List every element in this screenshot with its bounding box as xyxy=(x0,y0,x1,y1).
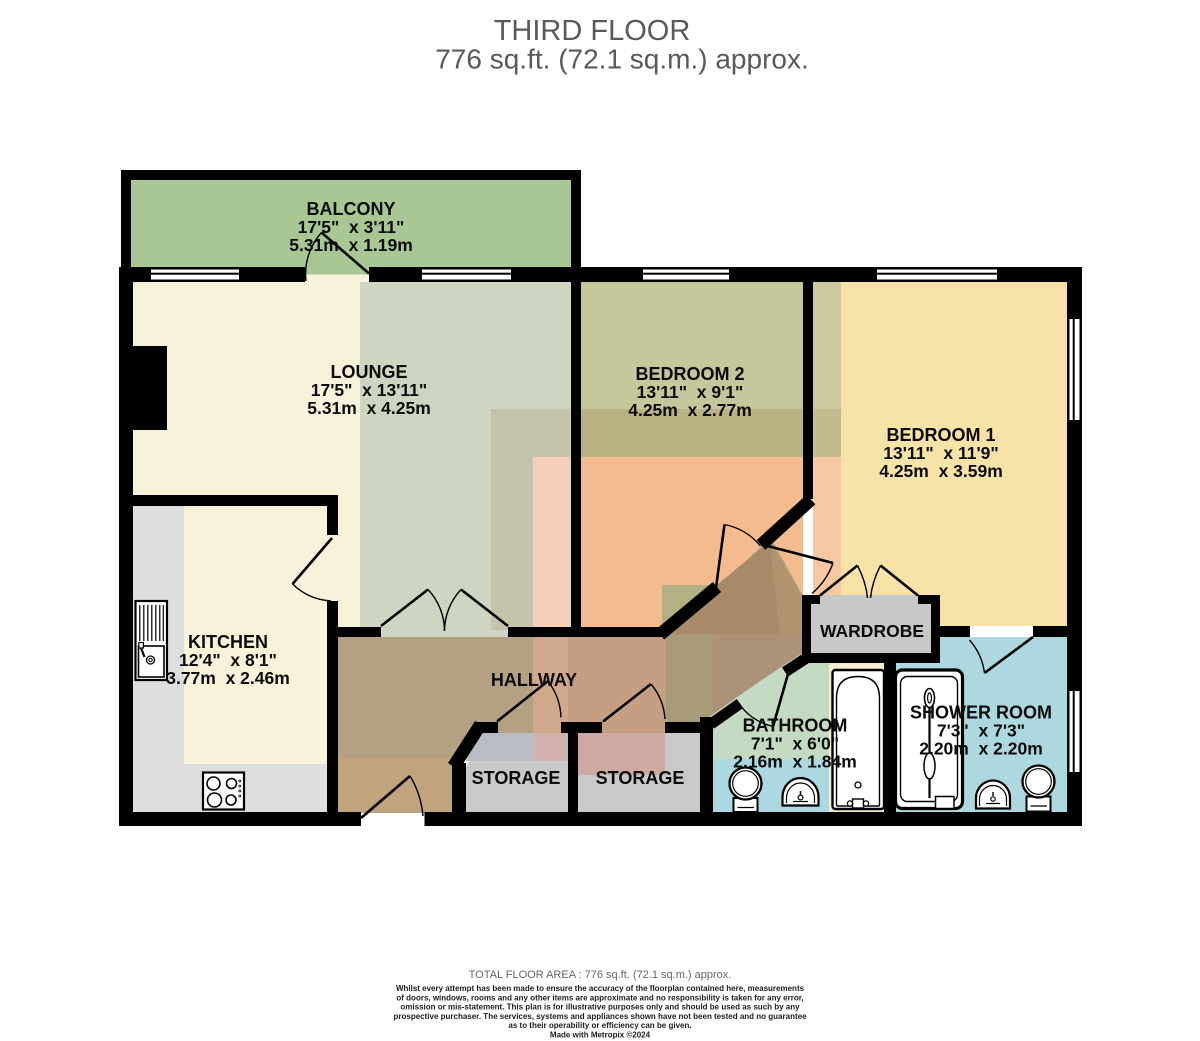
svg-text:THIRD FLOOR: THIRD FLOOR xyxy=(494,15,691,47)
svg-text:STORAGE: STORAGE xyxy=(596,768,685,788)
svg-text:HALLWAY: HALLWAY xyxy=(491,670,577,690)
svg-text:7'3" x 7'3": 7'3" x 7'3" xyxy=(937,721,1025,741)
svg-text:17'5" x 3'11": 17'5" x 3'11" xyxy=(298,217,405,237)
svg-text:KITCHEN: KITCHEN xyxy=(188,632,268,652)
svg-text:13'11" x 9'1": 13'11" x 9'1" xyxy=(637,382,744,402)
svg-text:3.77m x 2.46m: 3.77m x 2.46m xyxy=(166,668,290,688)
svg-text:of doors, windows, rooms and a: of doors, windows, rooms and any other i… xyxy=(396,993,803,1002)
svg-text:BEDROOM 2: BEDROOM 2 xyxy=(635,364,744,384)
svg-text:5.31m x 1.19m: 5.31m x 1.19m xyxy=(289,235,413,255)
svg-text:12'4" x 8'1": 12'4" x 8'1" xyxy=(179,650,277,670)
svg-text:Whilst every attempt has been: Whilst every attempt has been made to en… xyxy=(396,984,805,993)
svg-text:BEDROOM 1: BEDROOM 1 xyxy=(886,425,995,445)
svg-text:as to their operability or eff: as to their operability or efficiency ca… xyxy=(508,1021,691,1030)
svg-text:2.20m x 2.20m: 2.20m x 2.20m xyxy=(919,739,1043,759)
svg-text:BATHROOM: BATHROOM xyxy=(743,716,848,736)
svg-text:STORAGE: STORAGE xyxy=(472,768,561,788)
svg-text:4.25m x 2.77m: 4.25m x 2.77m xyxy=(628,400,752,420)
svg-text:17'5" x 13'11": 17'5" x 13'11" xyxy=(311,380,427,400)
svg-text:omission or mis-statement. Thi: omission or mis-statement. This plan is … xyxy=(400,1003,800,1012)
svg-text:prospective purchaser. The ser: prospective purchaser. The services, sys… xyxy=(393,1012,807,1021)
svg-text:4.25m x 3.59m: 4.25m x 3.59m xyxy=(879,461,1003,481)
svg-text:Made with Metropix ©2024: Made with Metropix ©2024 xyxy=(550,1031,651,1040)
svg-text:776 sq.ft. (72.1 sq.m.) approx: 776 sq.ft. (72.1 sq.m.) approx. xyxy=(435,44,809,75)
svg-text:5.31m x 4.25m: 5.31m x 4.25m xyxy=(307,398,431,418)
svg-text:LOUNGE: LOUNGE xyxy=(330,362,407,382)
svg-text:BALCONY: BALCONY xyxy=(307,199,396,219)
svg-text:TOTAL FLOOR AREA : 776 sq.ft.: TOTAL FLOOR AREA : 776 sq.ft. (72.1 sq.m… xyxy=(469,969,732,981)
svg-text:SHOWER ROOM: SHOWER ROOM xyxy=(910,703,1052,723)
svg-text:7'1" x 6'0": 7'1" x 6'0" xyxy=(751,734,839,754)
svg-text:13'11" x 11'9": 13'11" x 11'9" xyxy=(883,443,998,463)
svg-text:WARDROBE: WARDROBE xyxy=(820,621,924,641)
svg-text:2.16m x 1.84m: 2.16m x 1.84m xyxy=(733,752,857,772)
